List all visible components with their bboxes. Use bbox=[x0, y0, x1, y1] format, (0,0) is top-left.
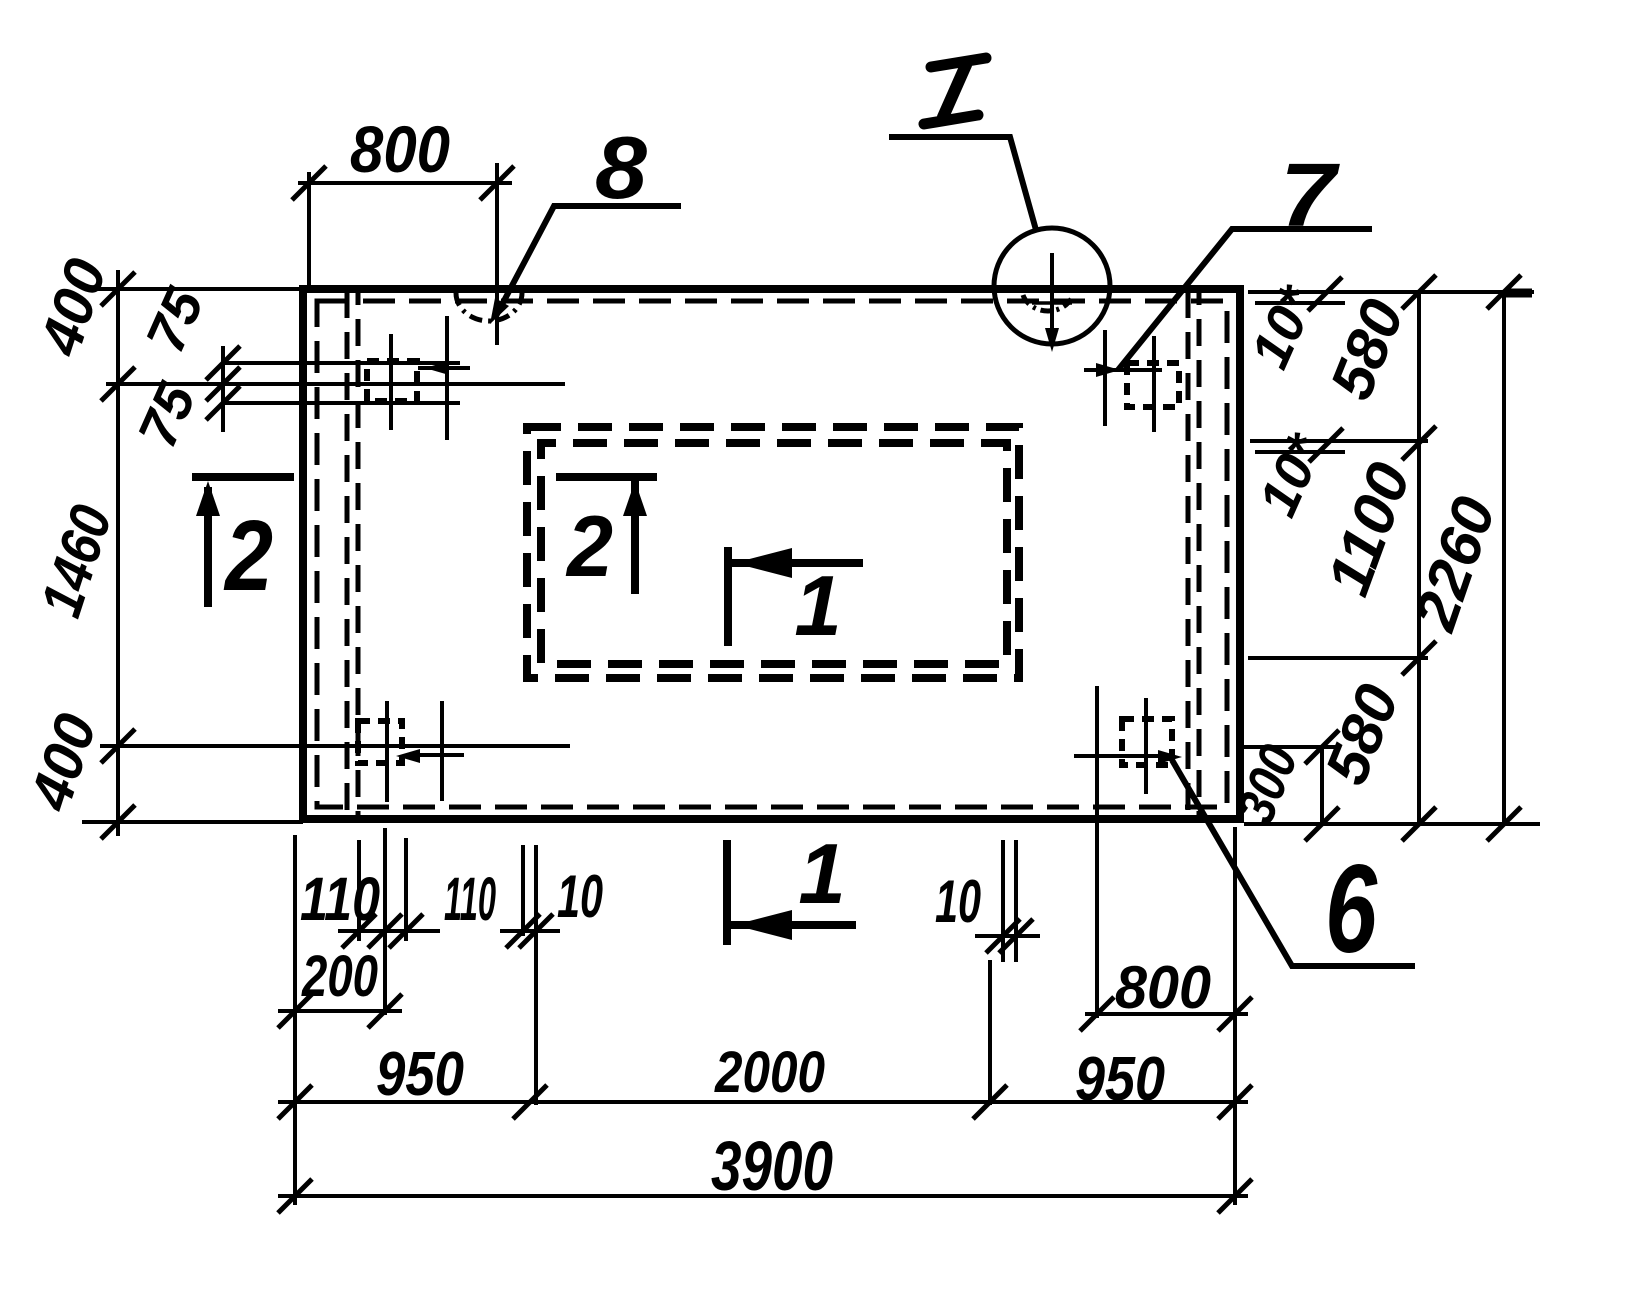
svg-text:110: 110 bbox=[444, 865, 496, 933]
svg-text:800: 800 bbox=[350, 112, 450, 186]
svg-text:3900: 3900 bbox=[711, 1127, 833, 1205]
svg-text:110: 110 bbox=[300, 865, 380, 933]
svg-text:6: 6 bbox=[1325, 840, 1378, 979]
svg-text:10: 10 bbox=[935, 868, 981, 935]
svg-text:1: 1 bbox=[794, 559, 841, 654]
svg-text:1: 1 bbox=[798, 827, 845, 922]
svg-text:950: 950 bbox=[376, 1040, 464, 1109]
svg-text:2000: 2000 bbox=[714, 1040, 825, 1105]
svg-text:950: 950 bbox=[1075, 1045, 1165, 1114]
svg-text:10: 10 bbox=[557, 863, 603, 930]
svg-text:800: 800 bbox=[1115, 954, 1211, 1021]
svg-text:2: 2 bbox=[223, 500, 273, 612]
svg-text:2: 2 bbox=[565, 499, 613, 595]
svg-text:200: 200 bbox=[301, 944, 378, 1009]
svg-text:8: 8 bbox=[595, 118, 647, 217]
